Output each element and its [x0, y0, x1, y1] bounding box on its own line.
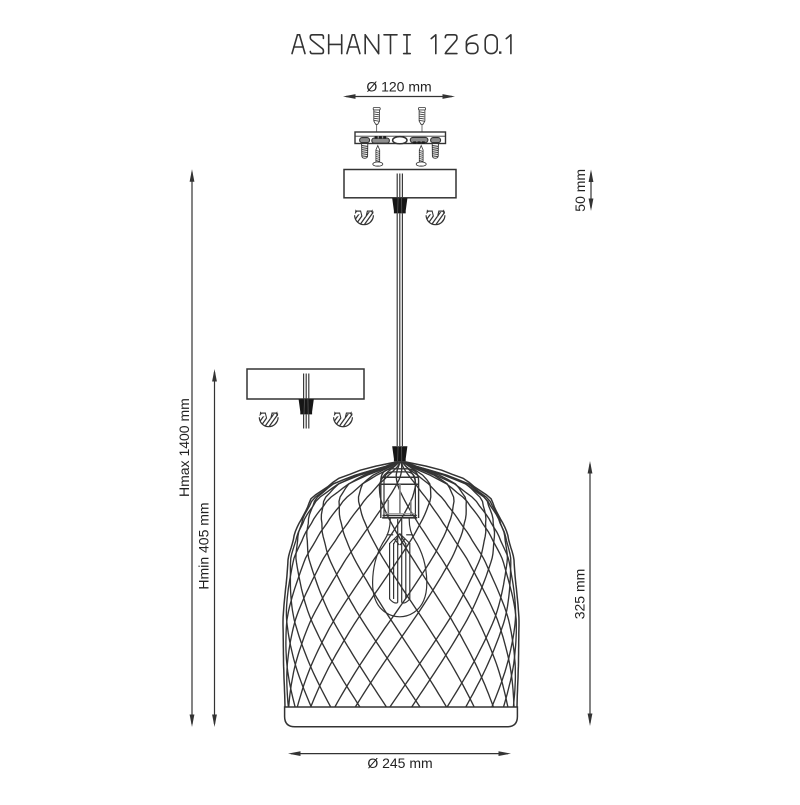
svg-text:325 mm: 325 mm [572, 569, 588, 620]
svg-text:Hmin 405 mm: Hmin 405 mm [196, 502, 212, 589]
svg-text:Ø 120 mm: Ø 120 mm [366, 79, 431, 95]
svg-text:Hmax 1400 mm: Hmax 1400 mm [176, 398, 192, 497]
svg-text:50 mm: 50 mm [572, 169, 588, 212]
svg-text:Ø 245 mm: Ø 245 mm [367, 755, 432, 771]
